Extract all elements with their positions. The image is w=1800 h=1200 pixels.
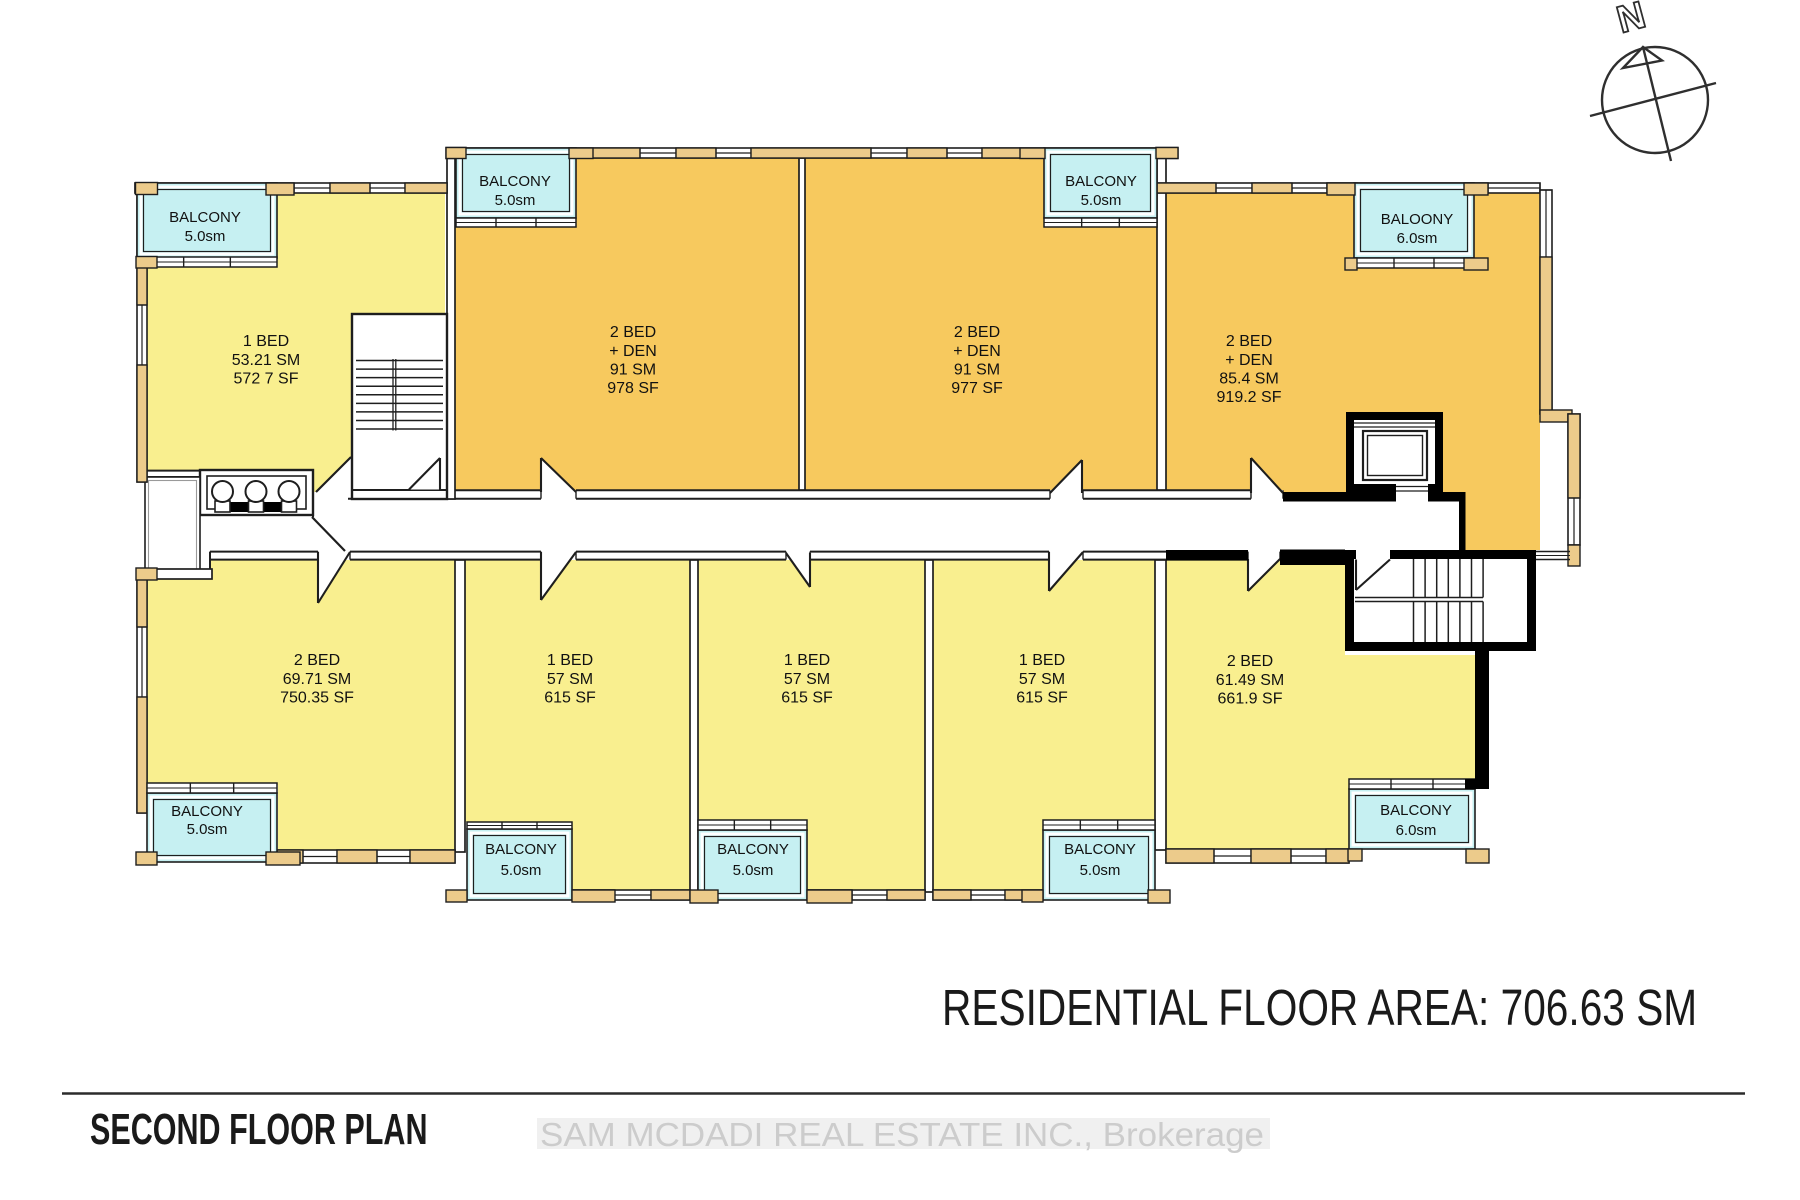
svg-text:BALCONY: BALCONY: [169, 209, 241, 226]
svg-text:5.0sm: 5.0sm: [501, 862, 542, 879]
svg-text:BALCONY: BALCONY: [1065, 173, 1137, 190]
svg-text:+ DEN: + DEN: [1225, 352, 1273, 369]
svg-text:5.0sm: 5.0sm: [1081, 192, 1122, 209]
svg-text:91 SM: 91 SM: [610, 361, 656, 378]
svg-text:1 BED: 1 BED: [547, 652, 593, 669]
svg-text:977 SF: 977 SF: [951, 380, 1003, 397]
svg-text:5.0sm: 5.0sm: [187, 821, 228, 838]
svg-text:SAM MCDADI REAL ESTATE INC., B: SAM MCDADI REAL ESTATE INC., Brokerage: [540, 1116, 1264, 1153]
svg-text:2 BED: 2 BED: [1226, 333, 1272, 350]
svg-text:57 SM: 57 SM: [1019, 671, 1065, 688]
svg-text:+ DEN: + DEN: [609, 343, 657, 360]
svg-text:5.0sm: 5.0sm: [495, 192, 536, 209]
svg-text:919.2 SF: 919.2 SF: [1217, 389, 1282, 406]
svg-text:5.0sm: 5.0sm: [185, 228, 226, 245]
svg-text:5.0sm: 5.0sm: [1080, 862, 1121, 879]
svg-text:615 SF: 615 SF: [781, 689, 833, 706]
svg-text:RESIDENTIAL FLOOR AREA: 706.63: RESIDENTIAL FLOOR AREA: 706.63 SM: [942, 979, 1697, 1037]
svg-text:2 BED: 2 BED: [294, 652, 340, 669]
svg-text:2 BED: 2 BED: [1227, 653, 1273, 670]
svg-text:69.71 SM: 69.71 SM: [283, 671, 351, 688]
svg-text:BALCONY: BALCONY: [171, 803, 243, 820]
svg-text:1 BED: 1 BED: [243, 333, 289, 350]
svg-text:615 SF: 615 SF: [544, 689, 596, 706]
svg-text:BALCONY: BALCONY: [1064, 841, 1136, 858]
svg-text:BALCONY: BALCONY: [485, 841, 557, 858]
svg-text:BALCONY: BALCONY: [479, 173, 551, 190]
svg-text:750.35 SF: 750.35 SF: [280, 689, 354, 706]
svg-text:5.0sm: 5.0sm: [733, 862, 774, 879]
svg-text:SECOND FLOOR PLAN: SECOND FLOOR PLAN: [90, 1106, 427, 1155]
svg-text:2 BED: 2 BED: [954, 324, 1000, 341]
svg-text:1 BED: 1 BED: [1019, 652, 1065, 669]
svg-text:572 7 SF: 572 7 SF: [234, 370, 299, 387]
svg-text:978 SF: 978 SF: [607, 380, 659, 397]
svg-text:85.4 SM: 85.4 SM: [1219, 370, 1279, 387]
svg-text:6.0sm: 6.0sm: [1396, 822, 1437, 839]
svg-text:BALOONY: BALOONY: [1381, 211, 1454, 228]
svg-text:6.0sm: 6.0sm: [1397, 230, 1438, 247]
svg-text:2 BED: 2 BED: [610, 324, 656, 341]
svg-text:BALCONY: BALCONY: [1380, 802, 1452, 819]
svg-text:57 SM: 57 SM: [547, 671, 593, 688]
svg-text:1 BED: 1 BED: [784, 652, 830, 669]
svg-text:61.49 SM: 61.49 SM: [1216, 672, 1284, 689]
svg-text:BALCONY: BALCONY: [717, 841, 789, 858]
svg-text:661.9 SF: 661.9 SF: [1218, 690, 1283, 707]
svg-text:91 SM: 91 SM: [954, 361, 1000, 378]
svg-text:53.21 SM: 53.21 SM: [232, 352, 300, 369]
svg-text:+ DEN: + DEN: [953, 343, 1001, 360]
svg-text:57 SM: 57 SM: [784, 671, 830, 688]
svg-text:615 SF: 615 SF: [1016, 689, 1068, 706]
